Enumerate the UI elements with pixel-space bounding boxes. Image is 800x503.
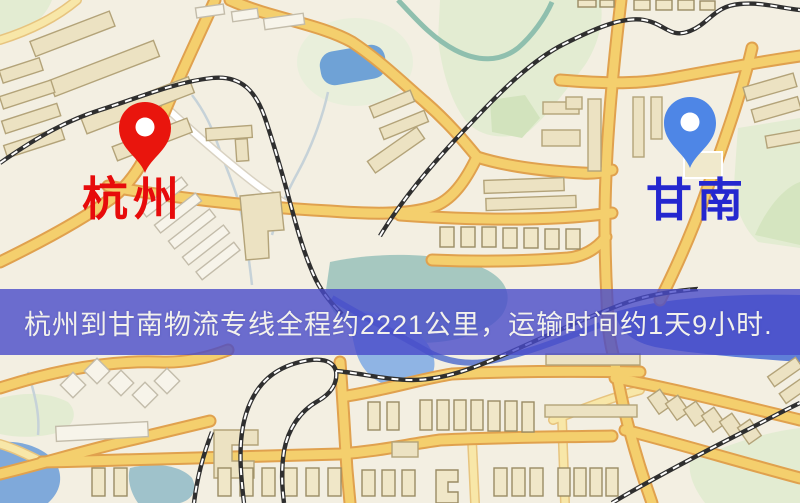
origin-pin-hole xyxy=(136,118,155,137)
destination-pin-hole xyxy=(681,113,700,132)
destination-pin-icon[interactable] xyxy=(660,92,720,168)
origin-pin-icon[interactable] xyxy=(115,97,175,173)
map-screenshot: 杭州 甘南 杭州到甘南物流专线全程约2221公里，运输时间约1天9小时. xyxy=(0,0,800,503)
route-info-text: 杭州到甘南物流专线全程约2221公里，运输时间约1天9小时. xyxy=(0,303,773,342)
route-info-banner: 杭州到甘南物流专线全程约2221公里，运输时间约1天9小时. xyxy=(0,289,800,355)
destination-pin-shape xyxy=(664,97,716,168)
map-viewport[interactable] xyxy=(0,0,800,503)
origin-pin-shape xyxy=(119,102,171,173)
destination-label: 甘南 xyxy=(646,177,748,225)
origin-label: 杭州 xyxy=(82,176,184,224)
